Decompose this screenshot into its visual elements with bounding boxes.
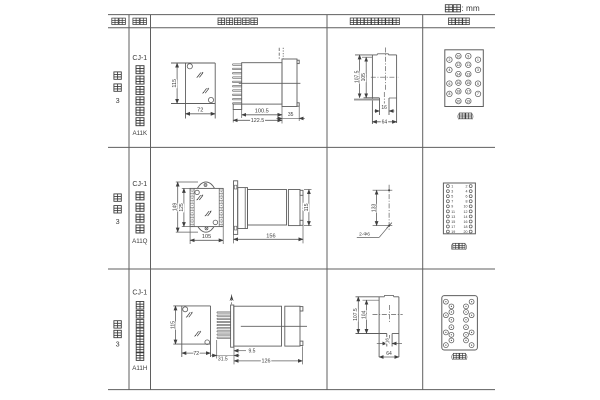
svg-text:100.5: 100.5	[255, 108, 269, 114]
svg-text:CJ-1: CJ-1	[132, 289, 147, 296]
svg-text:115: 115	[172, 79, 178, 88]
svg-text:15: 15	[451, 220, 455, 224]
svg-text:CJ-1: CJ-1	[132, 55, 147, 62]
svg-text:16: 16	[384, 338, 389, 344]
svg-text:17: 17	[466, 90, 470, 94]
svg-text:16: 16	[457, 81, 461, 85]
svg-text:(: (	[451, 354, 453, 360]
svg-text:): )	[466, 354, 468, 360]
svg-text:1: 1	[477, 58, 479, 62]
svg-text:(: (	[457, 114, 459, 120]
svg-text:107.5: 107.5	[354, 70, 360, 83]
svg-text:64: 64	[386, 351, 392, 357]
svg-text:3: 3	[451, 190, 453, 194]
svg-text:A11H: A11H	[132, 365, 147, 372]
svg-text:18: 18	[464, 225, 468, 229]
svg-text:10: 10	[457, 54, 461, 58]
svg-text:6: 6	[448, 82, 450, 86]
svg-text:12: 12	[457, 63, 461, 67]
svg-text:5: 5	[477, 82, 479, 86]
svg-text:20: 20	[457, 99, 461, 103]
svg-text:: mm: : mm	[462, 4, 480, 13]
svg-text:156: 156	[266, 233, 275, 239]
svg-text:126: 126	[262, 359, 271, 365]
svg-text:2-Φ6: 2-Φ6	[359, 232, 370, 238]
svg-text:3: 3	[116, 217, 120, 226]
svg-text:15: 15	[466, 81, 470, 85]
svg-text:11: 11	[467, 63, 471, 67]
svg-text:115: 115	[304, 203, 310, 211]
svg-text:105: 105	[202, 234, 211, 240]
svg-text:64: 64	[382, 120, 388, 126]
svg-text:8: 8	[466, 200, 468, 204]
svg-text:17: 17	[451, 225, 455, 229]
svg-text:16: 16	[381, 105, 387, 111]
svg-text:19: 19	[451, 230, 455, 234]
svg-text:20: 20	[464, 230, 468, 234]
svg-text:16: 16	[464, 220, 468, 224]
svg-text:122.5: 122.5	[251, 118, 265, 124]
svg-text:3: 3	[116, 96, 120, 105]
svg-text:35: 35	[288, 112, 294, 118]
svg-text:13: 13	[466, 72, 470, 76]
svg-text:14: 14	[464, 215, 468, 219]
svg-text:): )	[472, 114, 474, 120]
svg-text:115: 115	[170, 321, 176, 329]
svg-text:4: 4	[448, 68, 450, 72]
svg-text:125: 125	[179, 203, 185, 212]
svg-text:2: 2	[448, 58, 450, 62]
svg-text:6: 6	[466, 195, 468, 199]
svg-text:19: 19	[466, 99, 470, 103]
svg-text:133: 133	[372, 204, 378, 213]
svg-text:CJ-1: CJ-1	[132, 181, 147, 188]
svg-text:1: 1	[451, 185, 453, 189]
svg-text:9.5: 9.5	[249, 349, 256, 355]
svg-text:): )	[465, 244, 467, 250]
svg-text:3: 3	[116, 340, 120, 349]
svg-text:14: 14	[457, 72, 461, 76]
svg-text:11: 11	[451, 210, 455, 214]
svg-text:10: 10	[464, 205, 468, 209]
svg-text:A11Q: A11Q	[132, 238, 148, 245]
svg-text:9: 9	[451, 205, 453, 209]
svg-text:A11K: A11K	[132, 130, 148, 137]
svg-text:5: 5	[451, 195, 453, 199]
svg-text:8: 8	[448, 92, 450, 96]
svg-text:31.5: 31.5	[218, 356, 228, 362]
svg-text:7: 7	[451, 200, 453, 204]
svg-text:12: 12	[464, 210, 468, 214]
svg-text:9: 9	[467, 54, 469, 58]
svg-text:72: 72	[197, 108, 203, 114]
svg-text:107.5: 107.5	[353, 308, 359, 321]
svg-text:2: 2	[466, 185, 468, 189]
svg-text:18: 18	[457, 90, 461, 94]
svg-text:13: 13	[451, 215, 455, 219]
svg-text:4: 4	[466, 190, 468, 194]
svg-text:105: 105	[361, 73, 367, 82]
svg-text:149: 149	[173, 203, 179, 212]
svg-text:3: 3	[477, 68, 479, 72]
svg-text:7: 7	[477, 92, 479, 96]
svg-text:104: 104	[361, 310, 367, 319]
svg-text:72: 72	[193, 351, 199, 357]
svg-text:(: (	[451, 244, 453, 250]
